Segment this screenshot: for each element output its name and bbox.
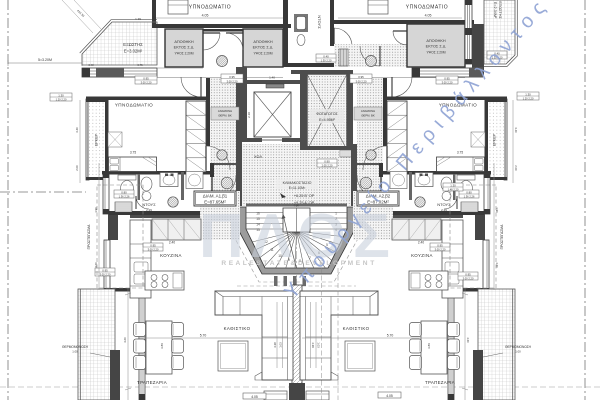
svg-text:ΚΑΘΙΣΤΙΚΟ: ΚΑΘΙΣΤΙΚΟ [224,326,251,331]
svg-text:3.86: 3.86 [160,343,164,349]
svg-text:2.10: 2.10 [247,112,251,118]
svg-text:5.70: 5.70 [200,334,207,338]
svg-text:1.20 2.20: 1.20 2.20 [523,97,534,101]
svg-text:ΕΡΚΕΡ: ΕΡΚΕΡ [493,133,497,146]
svg-text:3.86: 3.86 [427,343,431,349]
svg-text:ΠΡΟΣΤΕΓΑΣΜΑ: ΠΡΟΣΤΕΓΑΣΜΑ [87,224,91,250]
svg-text:ΦΩΤΑΓΩΓΟΣ: ΦΩΤΑΓΩΓΟΣ [316,112,338,116]
svg-text:ΘΕΡΜΟΜΟΝΩΣΗ: ΘΕΡΜΟΜΟΝΩΣΗ [505,345,532,349]
svg-text:R E A L E S T A T E & D: R E A L E S T A T E & D E V E L O P M E … [221,260,374,267]
svg-text:3.00 2.20: 3.00 2.20 [141,81,152,85]
svg-text:0.95: 0.95 [102,268,108,272]
svg-text:ΘΕΡΜ. BK: ΘΕΡΜ. BK [218,114,232,118]
svg-text:4.60: 4.60 [466,337,470,343]
svg-text:Ε=2.34Μ²: Ε=2.34Μ² [493,2,497,19]
svg-text:3.00 2.20: 3.00 2.20 [463,277,474,281]
svg-text:0.80: 0.80 [121,190,127,194]
svg-text:2.00: 2.00 [514,165,518,171]
svg-text:1.20 2.20: 1.20 2.20 [56,98,67,102]
svg-text:0.90: 0.90 [324,159,330,163]
svg-text:ΑΠΟΘΗΚΗ: ΑΠΟΘΗΚΗ [253,40,272,44]
svg-text:4.38: 4.38 [311,342,315,348]
svg-text:ΥΨΟΣ 2.20Μ: ΥΨΟΣ 2.20Μ [427,51,446,55]
svg-text:ΚΑΘΙΣΤΙΚΟ: ΚΑΘΙΣΤΙΚΟ [343,326,370,331]
svg-text:ΔΙΑΜ. Α1.β1: ΔΙΑΜ. Α1.β1 [203,194,228,199]
svg-text:1.36 2.26: 1.36 2.26 [464,195,475,199]
svg-text:ΥΨΟΣ 2.20Μ: ΥΨΟΣ 2.20Μ [175,52,194,56]
svg-text:2.05 2.20: 2.05 2.20 [322,164,333,168]
svg-text:ΥΨΟΣ 2.20Μ: ΥΨΟΣ 2.20Μ [254,52,273,56]
svg-text:1.30: 1.30 [450,183,456,187]
svg-text:ΚΛΙΜΑΚΟΣΤΑΣΙΟ: ΚΛΙΜΑΚΟΣΤΑΣΙΟ [283,181,312,185]
svg-text:0.95: 0.95 [150,243,156,247]
svg-text:3.40: 3.40 [514,127,518,133]
svg-text:2.00: 2.00 [75,165,79,171]
svg-text:0.95: 0.95 [143,76,149,80]
svg-text:4.60: 4.60 [123,337,127,343]
svg-text:ΝΤΟΥΣ: ΝΤΟΥΣ [317,15,322,29]
svg-text:ΕΚΤΟΣ Σ.Δ.: ΕΚΤΟΣ Σ.Δ. [426,45,447,49]
svg-text:ΑΠΟΘΗΚΗ: ΑΠΟΘΗΚΗ [174,40,193,44]
svg-text:3.40: 3.40 [75,127,79,133]
svg-text:+6.25 Β' ΟΡ: +6.25 Β' ΟΡ [294,194,315,198]
svg-text:ΑΠΟΘΗΚΗ: ΑΠΟΘΗΚΗ [426,39,445,43]
svg-text:0.95: 0.95 [465,272,471,276]
svg-text:Ε=3.02Μ²: Ε=3.02Μ² [124,49,143,54]
svg-text:4.05: 4.05 [202,14,209,18]
svg-text:1.03: 1.03 [279,342,283,348]
svg-text:1.00: 1.00 [72,350,78,354]
svg-text:ΝΤΟΥΣ: ΝΤΟΥΣ [142,202,156,207]
svg-text:1.39: 1.39 [135,17,141,21]
svg-text:3.00 2.20: 3.00 2.20 [227,79,238,83]
svg-text:3.00 2.20: 3.00 2.20 [148,248,159,252]
svg-text:ΤΡΑΠΕΖΑΡΙΑ: ΤΡΑΠΕΖΑΡΙΑ [425,380,455,385]
svg-text:ΑΝΑΜΟΝΗ: ΑΝΑΜΟΝΗ [218,109,232,113]
svg-text:1.30: 1.30 [525,92,531,96]
svg-text:ΝΤΟΥΣ: ΝΤΟΥΣ [437,202,451,207]
svg-text:1.48 2.20: 1.48 2.20 [448,188,459,192]
svg-text:5=3.20Μ: 5=3.20Μ [38,58,52,62]
svg-text:ΘΕΡΜΟΜΟΝΩΣΗ: ΘΕΡΜΟΜΟΝΩΣΗ [62,345,89,349]
svg-text:4.38: 4.38 [273,342,277,348]
svg-text:ΠΡΟΣΤΕΓΑΣΜΑ: ΠΡΟΣΤΕΓΑΣΜΑ [500,224,504,250]
svg-text:ΑΝΑΜΟΝΗ: ΑΝΑΜΟΝΗ [361,109,375,113]
svg-text:4.60: 4.60 [495,262,499,268]
svg-text:ΥΠΝΟΔΩΜΑΤΙΟ: ΥΠΝΟΔΩΜΑΤΙΟ [406,5,448,11]
svg-text:1.00: 1.00 [515,350,521,354]
svg-text:4.60: 4.60 [94,262,98,268]
svg-text:ΕΚΤΟΣ Σ.Δ.: ΕΚΤΟΣ Σ.Δ. [174,46,195,50]
svg-text:2.40: 2.40 [418,241,424,245]
svg-text:ΥΠΝΟΔΩΜΑΤΙΟ: ΥΠΝΟΔΩΜΑΤΙΟ [189,5,231,11]
svg-text:1.36 2.26: 1.36 2.26 [119,195,130,199]
svg-text:0.80: 0.80 [466,190,472,194]
svg-text:ΤΡΑΠΕΖΑΡΙΑ: ΤΡΑΠΕΖΑΡΙΑ [137,380,167,385]
svg-text:1.40: 1.40 [269,76,275,80]
svg-text:ΕΚΤΟΣ Σ.Δ.: ΕΚΤΟΣ Σ.Δ. [253,46,274,50]
svg-text:0.40: 0.40 [323,54,329,58]
svg-text:ΕΞΩΣΤΗΣ: ΕΞΩΣΤΗΣ [498,1,502,19]
svg-text:ΥΠΝΟΔΩΜΑΤΙΟ: ΥΠΝΟΔΩΜΑΤΙΟ [115,103,153,108]
svg-text:4.05: 4.05 [386,394,393,398]
svg-text:0.75: 0.75 [137,63,143,67]
svg-text:4.05: 4.05 [425,14,432,18]
svg-text:3.00 2.20: 3.00 2.20 [442,81,453,85]
svg-text:ΚΟΥΖΙΝΑ: ΚΟΥΖΙΝΑ [411,253,433,258]
svg-text:3.75: 3.75 [457,151,463,155]
svg-text:0.95: 0.95 [444,76,450,80]
svg-text:ΘΕΡΜ. BK: ΘΕΡΜ. BK [361,114,375,118]
svg-text:3.00 2.20: 3.00 2.20 [100,273,111,277]
svg-text:0.40: 0.40 [88,63,94,67]
svg-text:1.90: 1.90 [94,207,98,213]
svg-text:3.00 2.20: 3.00 2.20 [435,248,446,252]
svg-text:1.90: 1.90 [495,207,499,213]
svg-text:Ε=4.95Μ²: Ε=4.95Μ² [319,118,335,122]
svg-text:3.75: 3.75 [130,151,136,155]
svg-text:1.03: 1.03 [317,342,321,348]
svg-text:1.30: 1.30 [58,93,64,97]
svg-text:Ε=11.10Μ²: Ε=11.10Μ² [289,186,306,190]
svg-text:2.40: 2.40 [169,241,175,245]
svg-text:5.70: 5.70 [387,334,394,338]
svg-text:1.30 2.20: 1.30 2.20 [321,59,332,63]
svg-text:3.00 2.20: 3.00 2.20 [356,79,367,83]
svg-text:ΕΞΩΣΤΗΣ: ΕΞΩΣΤΗΣ [123,42,143,47]
svg-text:0.95: 0.95 [358,75,364,79]
svg-text:4.05: 4.05 [251,395,258,399]
svg-text:ΧΩΛ: ΧΩΛ [254,154,263,159]
svg-text:ΕΡΚΕΡ: ΕΡΚΕΡ [95,133,99,146]
svg-text:0.95: 0.95 [437,243,443,247]
svg-text:ΚΟΥΖΙΝΑ: ΚΟΥΖΙΝΑ [160,253,182,258]
svg-text:0.95: 0.95 [229,75,235,79]
